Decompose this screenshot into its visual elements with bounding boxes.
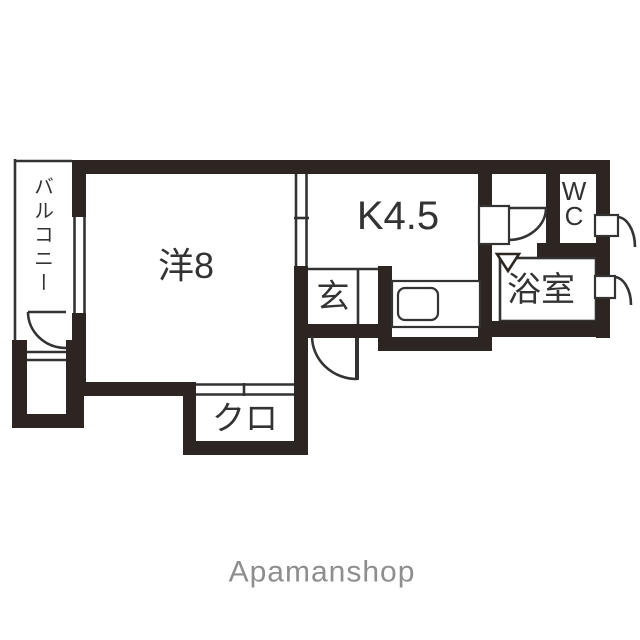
room-label-western-room: 洋8 xyxy=(158,247,214,285)
wall-westernroom-bottom xyxy=(72,382,196,396)
room-label-balcony: バルコニー xyxy=(31,176,52,296)
entrance-door-leaf xyxy=(355,338,359,380)
wall-kitchen-right-upper xyxy=(478,160,492,207)
wall-genkan-bottom xyxy=(294,324,392,338)
hall-door-arc xyxy=(508,208,546,240)
wall-closet-bottom xyxy=(183,441,308,455)
wc-door-arc xyxy=(617,217,635,247)
entrance-door-arc xyxy=(312,336,357,379)
wall-kitchen-bottom xyxy=(378,337,492,351)
wall-genkan-left xyxy=(294,266,308,455)
room-label-wc: W C xyxy=(562,179,587,229)
wall-left-upper xyxy=(72,160,86,217)
apamanshop-logo: Apamanshop xyxy=(229,556,416,588)
wc-label-line2: C xyxy=(562,204,587,229)
wall-wc-bottom xyxy=(537,243,610,257)
wc-door-leaf xyxy=(595,215,618,236)
wall-top xyxy=(72,160,610,174)
room-label-closet: クロ xyxy=(212,402,278,437)
kitchen-sink-icon xyxy=(398,288,438,320)
wall-bath-bottom xyxy=(492,321,610,337)
room-label-bathroom: 浴室 xyxy=(507,273,575,309)
bath-door-arc xyxy=(614,277,631,305)
wall-wc-left xyxy=(546,160,560,250)
bath-door-leaf xyxy=(595,276,615,298)
wall-genkan-right xyxy=(378,266,392,338)
floor-plan-drawing xyxy=(0,0,640,640)
floor-plan-canvas: バルコニー 洋8 K4.5 玄 クロ W C 浴室 Apamanshop xyxy=(0,0,640,640)
hall-door-leaf xyxy=(479,206,509,244)
room-label-kitchen: K4.5 xyxy=(357,195,439,237)
room-label-entrance: 玄 xyxy=(317,280,350,315)
